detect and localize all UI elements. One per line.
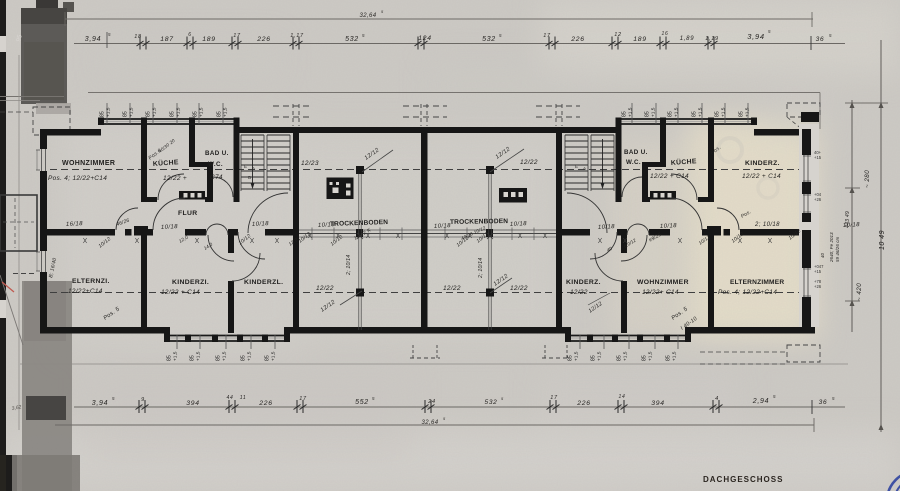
svg-text:85: 85 bbox=[715, 111, 721, 117]
svg-text:85: 85 bbox=[193, 111, 199, 117]
svg-text:85: 85 bbox=[216, 355, 222, 361]
svg-text:3,94: 3,94 bbox=[92, 400, 108, 407]
svg-text:24: 24 bbox=[427, 399, 436, 405]
svg-text:85: 85 bbox=[190, 355, 196, 361]
svg-text:6: 6 bbox=[188, 32, 191, 38]
svg-text:12/22 + C14: 12/22 + C14 bbox=[650, 173, 689, 180]
svg-text:85: 85 bbox=[591, 355, 597, 361]
svg-text:1,19: 1,19 bbox=[705, 36, 719, 42]
svg-text:16: 16 bbox=[662, 31, 669, 37]
svg-text:+1,5: +1,5 bbox=[129, 107, 135, 117]
svg-text:ELTERNZI.: ELTERNZI. bbox=[72, 278, 110, 285]
svg-text:12/22+ C14: 12/22+ C14 bbox=[642, 289, 679, 296]
svg-text:85: 85 bbox=[666, 355, 672, 361]
svg-text:+26: +26 bbox=[814, 284, 822, 289]
svg-text:394: 394 bbox=[186, 400, 199, 407]
svg-text:+1,5: +1,5 bbox=[651, 107, 657, 117]
svg-text:12/22: 12/22 bbox=[443, 285, 461, 292]
svg-text:KINDERZI.: KINDERZI. bbox=[172, 279, 209, 286]
svg-text:~ 420: ~ 420 bbox=[856, 283, 863, 301]
svg-text:3,94: 3,94 bbox=[747, 32, 764, 41]
svg-text:+1,5: +1,5 bbox=[648, 351, 654, 361]
svg-text:85: 85 bbox=[645, 111, 651, 117]
svg-text:+1,5: +1,5 bbox=[628, 107, 634, 117]
svg-text:10/18: 10/18 bbox=[598, 224, 616, 231]
svg-text:17: 17 bbox=[550, 395, 558, 401]
svg-text:226: 226 bbox=[258, 400, 272, 407]
svg-text:B: B bbox=[248, 175, 251, 180]
svg-text:189: 189 bbox=[202, 36, 215, 43]
svg-text:226: 226 bbox=[570, 36, 584, 43]
svg-text:85: 85 bbox=[170, 111, 176, 117]
svg-text:17: 17 bbox=[543, 33, 551, 39]
svg-text:40: 40 bbox=[820, 252, 825, 258]
svg-text:85: 85 bbox=[568, 355, 574, 361]
svg-text:W.C.: W.C. bbox=[626, 159, 641, 166]
svg-text:16/18: 16/18 bbox=[66, 221, 84, 228]
svg-text:17: 17 bbox=[233, 33, 241, 39]
svg-text:W.C.: W.C. bbox=[208, 161, 223, 168]
svg-text:+1,5: +1,5 bbox=[199, 107, 205, 117]
svg-text:+1,5: +1,5 bbox=[106, 107, 112, 117]
svg-text:+1,5: +1,5 bbox=[222, 351, 228, 361]
svg-text:Pos. 4; 12/22+C14: Pos. 4; 12/22+C14 bbox=[718, 289, 777, 296]
svg-text:12/22 + C14: 12/22 + C14 bbox=[161, 289, 200, 296]
svg-text:2,94: 2,94 bbox=[752, 398, 769, 405]
svg-text:+15: +15 bbox=[814, 269, 822, 274]
svg-text:1,89: 1,89 bbox=[680, 36, 694, 42]
svg-text:189: 189 bbox=[633, 36, 646, 43]
svg-text:2; 10/18: 2; 10/18 bbox=[754, 222, 780, 228]
svg-text:+1,5: +1,5 bbox=[745, 107, 751, 117]
svg-text:+1,5: +1,5 bbox=[173, 351, 179, 361]
svg-text:12/22: 12/22 bbox=[510, 285, 528, 292]
svg-text:KINDERZL.: KINDERZL. bbox=[244, 279, 283, 286]
svg-text:+1,5: +1,5 bbox=[721, 107, 727, 117]
svg-text:1,17: 1,17 bbox=[290, 33, 304, 39]
svg-text:44: 44 bbox=[227, 395, 234, 401]
svg-text:+1,5: +1,5 bbox=[597, 351, 603, 361]
svg-text:+1,5: +1,5 bbox=[698, 107, 704, 117]
svg-text:124: 124 bbox=[418, 35, 431, 42]
svg-text:12/22: 12/22 bbox=[520, 159, 538, 166]
svg-text:+1,5: +1,5 bbox=[176, 107, 182, 117]
svg-text:TROCKENBODEN: TROCKENBODEN bbox=[450, 218, 508, 226]
svg-text:+1,5: +1,5 bbox=[247, 351, 253, 361]
svg-text:32,64: 32,64 bbox=[421, 420, 438, 426]
svg-text:BAD U.: BAD U. bbox=[205, 150, 229, 157]
svg-text:10/18: 10/18 bbox=[660, 223, 678, 230]
svg-text:+1,5: +1,5 bbox=[574, 351, 580, 361]
svg-text:12/23: 12/23 bbox=[301, 160, 319, 167]
svg-text:32,64: 32,64 bbox=[359, 13, 376, 19]
svg-text:532: 532 bbox=[485, 399, 498, 406]
svg-text:KINDERZ.: KINDERZ. bbox=[745, 160, 780, 167]
svg-text:10/18: 10/18 bbox=[252, 221, 270, 228]
svg-text:85: 85 bbox=[622, 111, 628, 117]
svg-text:BAD U.: BAD U. bbox=[624, 149, 648, 156]
svg-text:85: 85 bbox=[642, 355, 648, 361]
svg-text:12/22+C14: 12/22+C14 bbox=[68, 288, 103, 295]
svg-text:E: E bbox=[244, 164, 247, 169]
svg-text:+1,5: +1,5 bbox=[223, 107, 229, 117]
svg-text:10/18: 10/18 bbox=[161, 224, 179, 231]
svg-text:+1,5: +1,5 bbox=[674, 107, 680, 117]
svg-text:10 49: 10 49 bbox=[879, 230, 886, 250]
svg-text:DACHGESCHOSS: DACHGESCHOSS bbox=[703, 475, 783, 484]
svg-text:36: 36 bbox=[819, 399, 828, 406]
svg-text:+26: +26 bbox=[814, 197, 822, 202]
svg-text:+1,5: +1,5 bbox=[196, 351, 202, 361]
svg-text:18: 18 bbox=[134, 34, 142, 40]
svg-text:4: 4 bbox=[715, 396, 719, 402]
svg-text:2; 10/14: 2; 10/14 bbox=[478, 258, 484, 279]
svg-text:59 46/26 cm: 59 46/26 cm bbox=[835, 236, 840, 262]
svg-text:85: 85 bbox=[123, 111, 129, 117]
svg-text:85: 85 bbox=[739, 111, 745, 117]
svg-text:85: 85 bbox=[167, 355, 173, 361]
svg-text:+1,5: +1,5 bbox=[623, 351, 629, 361]
svg-text:85: 85 bbox=[265, 355, 271, 361]
svg-text:+1,5: +1,5 bbox=[672, 351, 678, 361]
svg-text:17: 17 bbox=[299, 396, 307, 402]
svg-text:85: 85 bbox=[100, 111, 106, 117]
svg-text:C74: C74 bbox=[210, 174, 223, 181]
svg-text:Pos. 4; 12/22+C14: Pos. 4; 12/22+C14 bbox=[48, 175, 107, 182]
svg-text:12/22: 12/22 bbox=[316, 285, 334, 292]
svg-text:532: 532 bbox=[482, 36, 496, 43]
svg-text:552: 552 bbox=[355, 399, 369, 406]
svg-text:12: 12 bbox=[614, 32, 622, 38]
svg-text:85: 85 bbox=[617, 355, 623, 361]
svg-text:10/18: 10/18 bbox=[510, 221, 528, 228]
svg-text:394: 394 bbox=[651, 400, 664, 407]
svg-text:3,94: 3,94 bbox=[85, 36, 101, 43]
svg-text:ELTERNZIMMER: ELTERNZIMMER bbox=[730, 279, 784, 286]
svg-text:85: 85 bbox=[692, 111, 698, 117]
svg-text:12/22 +: 12/22 + bbox=[163, 175, 187, 182]
svg-text:85: 85 bbox=[146, 111, 152, 117]
svg-text:10/18: 10/18 bbox=[434, 223, 452, 230]
svg-text:36: 36 bbox=[816, 36, 825, 43]
svg-text:11: 11 bbox=[240, 395, 247, 401]
svg-text:85: 85 bbox=[241, 355, 247, 361]
svg-text:KINDERZ.: KINDERZ. bbox=[566, 279, 601, 286]
svg-text:443 49: 443 49 bbox=[845, 211, 851, 228]
svg-text:226: 226 bbox=[256, 36, 270, 43]
svg-text:532: 532 bbox=[345, 36, 359, 43]
svg-text:E: E bbox=[575, 164, 578, 169]
svg-text:+1,5: +1,5 bbox=[271, 351, 277, 361]
svg-text:WOHNZIMMER: WOHNZIMMER bbox=[62, 160, 115, 167]
svg-text:2640; Fe 2013: 2640; Fe 2013 bbox=[829, 232, 834, 263]
svg-text:12/22: 12/22 bbox=[570, 289, 588, 296]
svg-text:~ 280: ~ 280 bbox=[864, 170, 871, 188]
svg-text:226: 226 bbox=[576, 400, 590, 407]
svg-text:9: 9 bbox=[141, 397, 145, 403]
svg-text:2; 10/14: 2; 10/14 bbox=[346, 255, 352, 276]
svg-text:+1,5: +1,5 bbox=[152, 107, 158, 117]
svg-text:85: 85 bbox=[668, 111, 674, 117]
svg-text:WOHNZIMMER: WOHNZIMMER bbox=[637, 279, 689, 286]
svg-text:14: 14 bbox=[619, 394, 626, 400]
svg-text:85: 85 bbox=[217, 111, 223, 117]
svg-text:FLUR: FLUR bbox=[178, 210, 198, 217]
svg-text:+15: +15 bbox=[814, 155, 822, 160]
svg-text:187: 187 bbox=[160, 36, 173, 43]
